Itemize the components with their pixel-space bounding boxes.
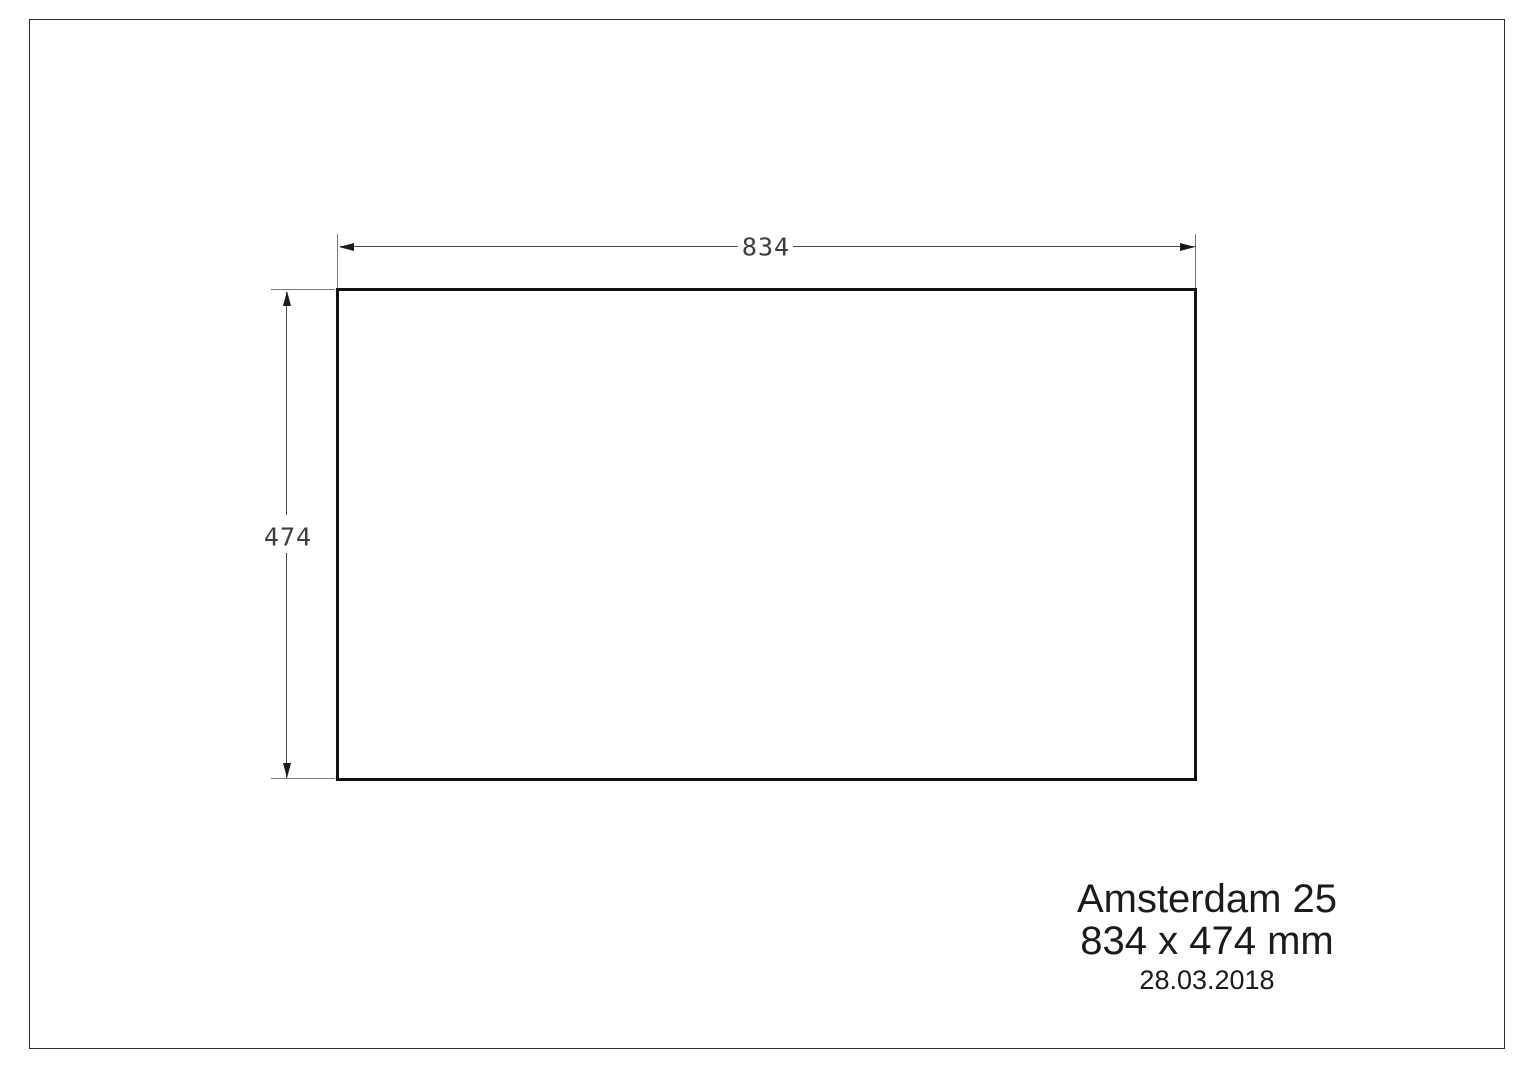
product-overall-size: 834 x 474 mm xyxy=(1077,920,1337,962)
width-dimension-label: 834 xyxy=(742,233,790,262)
drawing-date: 28.03.2018 xyxy=(1077,964,1337,996)
width-dimension-line-right-segment xyxy=(793,246,1195,247)
height-dimension-arrow-up-icon xyxy=(283,291,291,306)
sink-outline-rectangle xyxy=(336,288,1197,781)
height-extension-line-bottom xyxy=(271,778,335,779)
drawing-sheet: 834 474 Amsterdam 25 834 x 474 mm 28.03.… xyxy=(0,0,1528,1080)
height-extension-line-top xyxy=(271,289,335,290)
width-dimension-arrow-left-icon xyxy=(339,243,354,251)
width-dimension-arrow-right-icon xyxy=(1180,243,1195,251)
width-extension-line-left xyxy=(337,234,338,288)
height-dimension-arrow-down-icon xyxy=(283,763,291,778)
width-dimension-line-left-segment xyxy=(340,246,738,247)
width-extension-line-right xyxy=(1195,234,1196,288)
product-model-name: Amsterdam 25 xyxy=(1077,878,1337,920)
height-dimension-label: 474 xyxy=(264,523,312,552)
height-dimension-line-bottom-segment xyxy=(286,553,287,778)
title-block: Amsterdam 25 834 x 474 mm 28.03.2018 xyxy=(1077,878,1337,996)
height-dimension-line-top-segment xyxy=(286,292,287,515)
